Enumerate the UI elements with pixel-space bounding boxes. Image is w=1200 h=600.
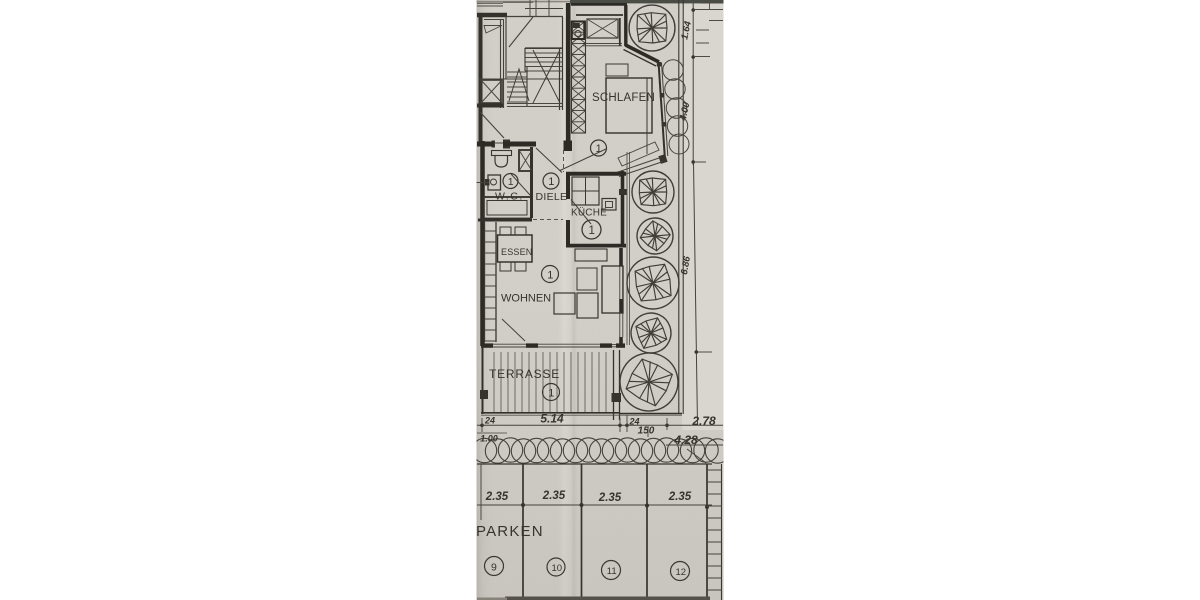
- svg-text:TERRASSE: TERRASSE: [489, 367, 560, 381]
- svg-text:WOHNEN: WOHNEN: [501, 293, 551, 305]
- svg-text:1: 1: [589, 225, 595, 237]
- svg-text:9: 9: [491, 562, 497, 574]
- svg-text:PARKEN: PARKEN: [476, 523, 544, 540]
- svg-text:2.35: 2.35: [668, 491, 692, 503]
- svg-text:1: 1: [548, 176, 554, 188]
- svg-text:2.35: 2.35: [598, 492, 622, 504]
- svg-text:1.00: 1.00: [480, 434, 498, 444]
- svg-text:KÜCHE: KÜCHE: [571, 207, 607, 219]
- svg-text:1: 1: [548, 387, 554, 399]
- svg-text:24: 24: [484, 416, 495, 426]
- svg-text:SCHLAFEN: SCHLAFEN: [592, 92, 655, 104]
- svg-text:ESSEN: ESSEN: [501, 247, 533, 257]
- svg-text:5.14: 5.14: [540, 412, 564, 426]
- svg-text:150: 150: [638, 426, 655, 437]
- svg-text:10: 10: [552, 563, 563, 574]
- svg-text:1: 1: [547, 269, 553, 281]
- svg-text:11: 11: [607, 566, 617, 577]
- svg-text:2.35: 2.35: [485, 491, 509, 503]
- svg-text:2.35: 2.35: [542, 490, 566, 502]
- svg-text:2.78: 2.78: [691, 414, 716, 428]
- svg-text:1: 1: [508, 176, 514, 188]
- svg-text:DIELE: DIELE: [536, 191, 568, 203]
- svg-text:12: 12: [676, 567, 687, 578]
